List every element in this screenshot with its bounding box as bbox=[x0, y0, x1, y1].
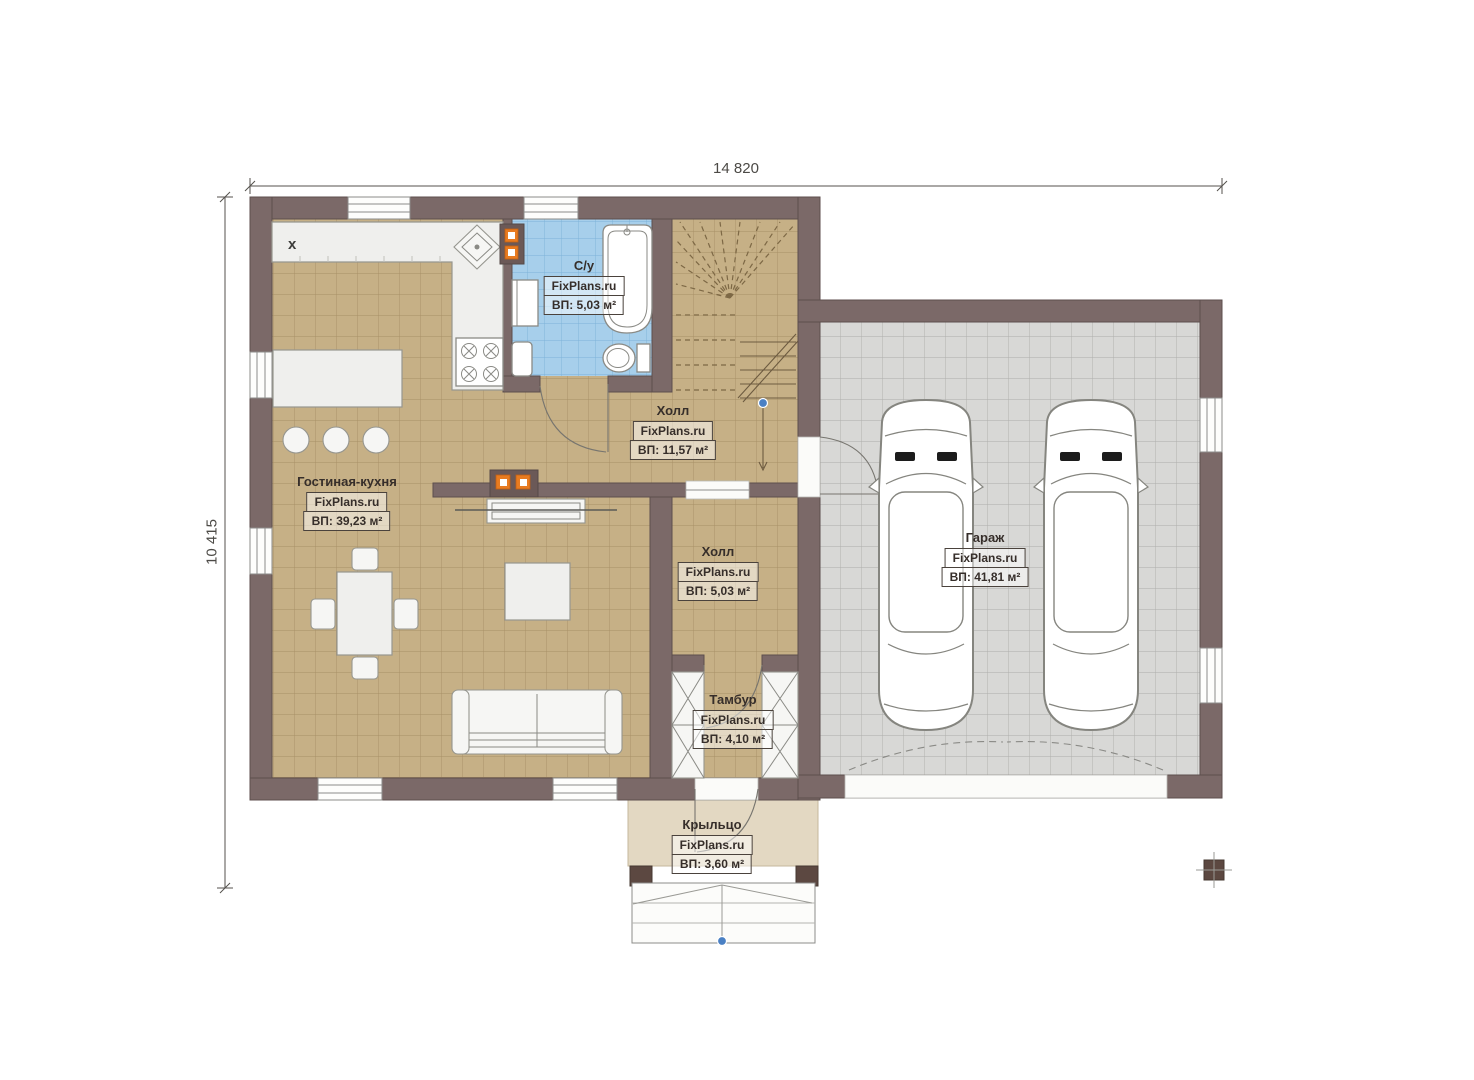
room-label-garage: Гараж FixPlans.ru ВП: 41,81 м² bbox=[942, 530, 1029, 587]
bathroom-sink bbox=[512, 342, 532, 376]
bar-stool bbox=[363, 427, 389, 453]
watermark: FixPlans.ru bbox=[672, 835, 753, 855]
dimension-width-label: 14 820 bbox=[713, 160, 759, 177]
front-door-opening bbox=[695, 778, 758, 800]
boiler-unit bbox=[500, 224, 524, 264]
room-label-tambour: Тамбур FixPlans.ru ВП: 4,10 м² bbox=[693, 692, 774, 749]
room-area: ВП: 11,57 м² bbox=[630, 440, 716, 460]
level-marker bbox=[718, 937, 727, 946]
coffee-table bbox=[505, 563, 570, 620]
room-area: ВП: 5,03 м² bbox=[678, 581, 758, 601]
kitchen-appliance-mark: x bbox=[288, 236, 297, 253]
level-marker bbox=[759, 399, 768, 408]
sofa bbox=[452, 690, 622, 754]
site-marker bbox=[1196, 852, 1232, 888]
chair bbox=[352, 657, 378, 679]
room-name: Холл bbox=[657, 403, 690, 418]
hall-garage-door-opening bbox=[798, 437, 820, 497]
room-label-porch: Крыльцо FixPlans.ru ВП: 3,60 м² bbox=[672, 817, 753, 874]
window bbox=[1200, 648, 1222, 703]
floor-plan-page: x bbox=[0, 0, 1474, 1080]
watermark: FixPlans.ru bbox=[693, 710, 774, 730]
room-name: Холл bbox=[702, 544, 735, 559]
window bbox=[348, 197, 410, 219]
chair bbox=[394, 599, 418, 629]
window bbox=[524, 197, 578, 219]
watermark: FixPlans.ru bbox=[678, 562, 759, 582]
watermark: FixPlans.ru bbox=[544, 276, 625, 296]
watermark: FixPlans.ru bbox=[945, 548, 1026, 568]
fireplace bbox=[490, 470, 538, 497]
room-label-hall-upper: Холл FixPlans.ru ВП: 11,57 м² bbox=[630, 403, 716, 460]
window bbox=[250, 528, 272, 574]
window bbox=[1200, 398, 1222, 452]
garage-gate bbox=[845, 775, 1167, 798]
room-area: ВП: 41,81 м² bbox=[942, 567, 1029, 587]
room-name: Крыльцо bbox=[682, 817, 741, 832]
porch-steps bbox=[632, 883, 815, 946]
window bbox=[318, 778, 382, 800]
room-area: ВП: 3,60 м² bbox=[672, 854, 752, 874]
kitchen-island bbox=[273, 350, 402, 407]
room-label-living-kitchen: Гостиная-кухня FixPlans.ru ВП: 39,23 м² bbox=[297, 474, 397, 531]
window bbox=[250, 352, 272, 398]
watermark: FixPlans.ru bbox=[633, 421, 714, 441]
watermark: FixPlans.ru bbox=[307, 492, 388, 512]
dining-table bbox=[337, 572, 392, 655]
room-area: ВП: 39,23 м² bbox=[304, 511, 391, 531]
car-right bbox=[1034, 400, 1148, 730]
hall-living-doorway bbox=[686, 481, 749, 499]
dimension-height-label: 10 415 bbox=[204, 519, 221, 565]
window bbox=[553, 778, 617, 800]
dimension-top bbox=[245, 178, 1227, 194]
room-name: Гостиная-кухня bbox=[297, 474, 397, 489]
stove bbox=[456, 338, 503, 386]
room-area: ВП: 4,10 м² bbox=[693, 729, 773, 749]
toilet bbox=[603, 344, 650, 372]
chair bbox=[311, 599, 335, 629]
room-label-bathroom: С/у FixPlans.ru ВП: 5,03 м² bbox=[544, 258, 625, 315]
room-name: Тамбур bbox=[709, 692, 756, 707]
bar-stool bbox=[323, 427, 349, 453]
room-area: ВП: 5,03 м² bbox=[544, 295, 624, 315]
room-name: Гараж bbox=[966, 530, 1005, 545]
room-label-hall-lower: Холл FixPlans.ru ВП: 5,03 м² bbox=[678, 544, 759, 601]
bar-stool bbox=[283, 427, 309, 453]
room-name: С/у bbox=[574, 258, 594, 273]
chair bbox=[352, 548, 378, 570]
washing-machine bbox=[512, 280, 538, 326]
